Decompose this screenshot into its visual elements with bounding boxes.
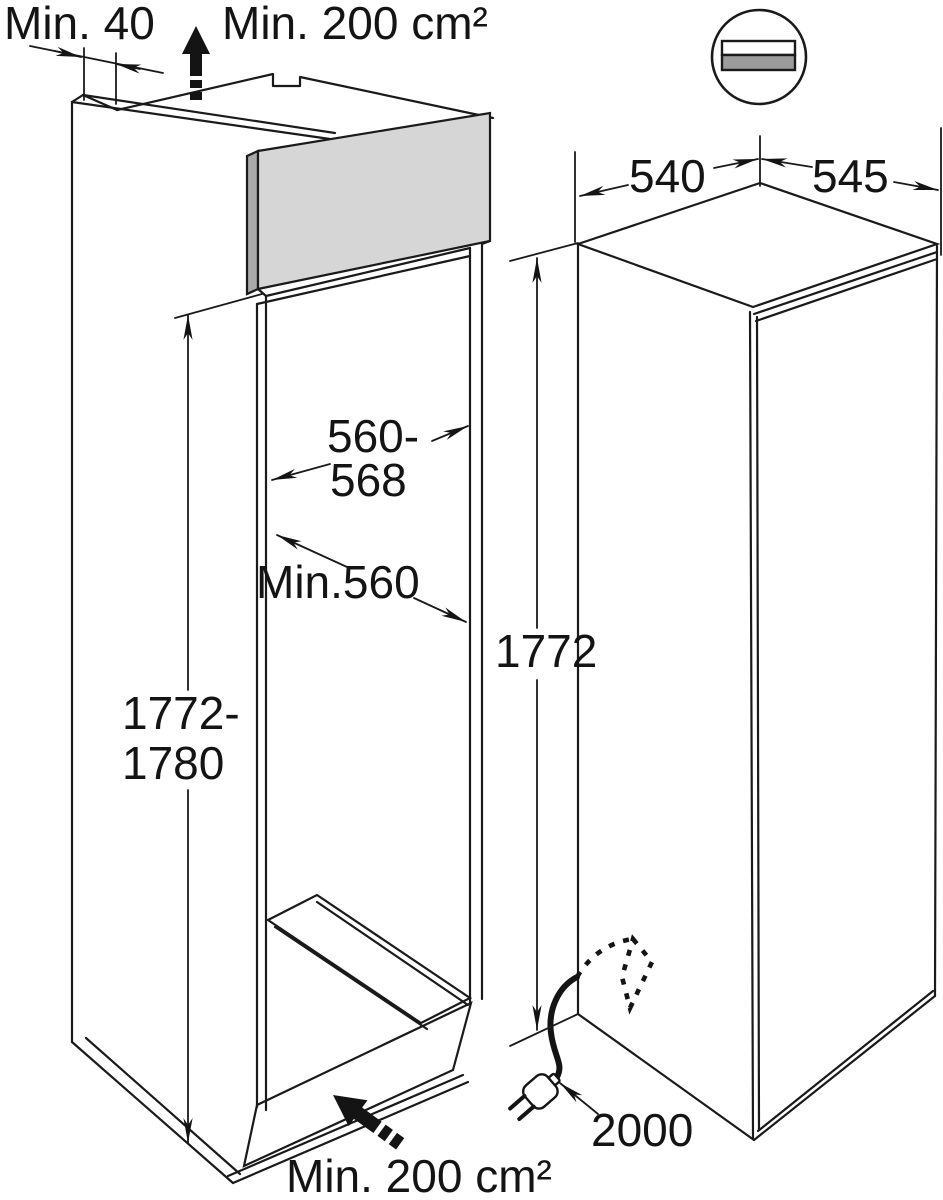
cord-length-label: 2000 [591,1104,693,1156]
appliance-dim-left-label: 540 [629,150,706,202]
installation-diagram: Min. 40 Min. 200 cm² 540 545 560- 568 Mi… [0,0,943,1200]
dim545-arrow-right [894,182,938,190]
vent-icon-bottom-bar [722,55,795,70]
dim1772-ext-top [510,243,578,261]
niche-depth-arrow-right [414,598,466,622]
diagram-canvas: Min. 40 Min. 200 cm² 540 545 560- 568 Mi… [0,0,943,1200]
door-bottom-edge-2 [758,991,933,1131]
niche-width-arrow-left [272,464,330,480]
panel-bottom-edge [72,1042,233,1183]
top-panel-edge-face [247,151,258,294]
cord-route-dashed-curve [577,939,633,977]
top-panel-front-face [258,113,490,289]
plinth-vent-slot [244,1003,471,1166]
appliance-height-label: 1772 [495,625,597,677]
door-bottom-edge-1 [754,996,935,1140]
niche-panel-top-edge [72,95,335,133]
niche-height-label-line1: 1772- [122,687,240,739]
rear-gap-arrow-left [55,51,81,57]
appliance-right-edge [935,246,937,996]
dim540-arrow-apex [714,159,758,168]
door-left-edge-1 [750,312,753,1139]
airflow-base-arrow [324,1082,410,1157]
niche-figure [72,74,493,1183]
worktop-back-edge [117,74,493,118]
vent-icon-top-bar [722,41,795,55]
bottom-vent-label: Min. 200 cm² [286,1150,552,1200]
worktop-vent-cross-section-icon [712,10,806,104]
rear-gap-label: Min. 40 [4,0,155,49]
dim540-arrow-left [580,185,628,196]
niche-depth-label: Min.560 [256,556,420,608]
rear-gap-arrow-right [116,64,140,69]
niche-width-arrow-right [432,426,468,441]
dim545-arrow-apex [762,159,812,167]
rear-gap-dim-line [30,46,163,73]
appliance-dim-right-label: 545 [812,150,889,202]
door-left-edge-2 [757,317,759,1130]
power-cord [550,977,577,1077]
cord-route-dashed-outlet [622,939,652,1008]
top-vent-label: Min. 200 cm² [222,0,488,49]
niche-floor-panel [268,895,470,1023]
niche-height-label-line2: 1780 [122,737,224,789]
niche-width-label-line2: 568 [330,454,407,506]
panel-bottom-edge-inner [86,1038,240,1174]
dim1772-ext-bottom [510,1014,578,1046]
